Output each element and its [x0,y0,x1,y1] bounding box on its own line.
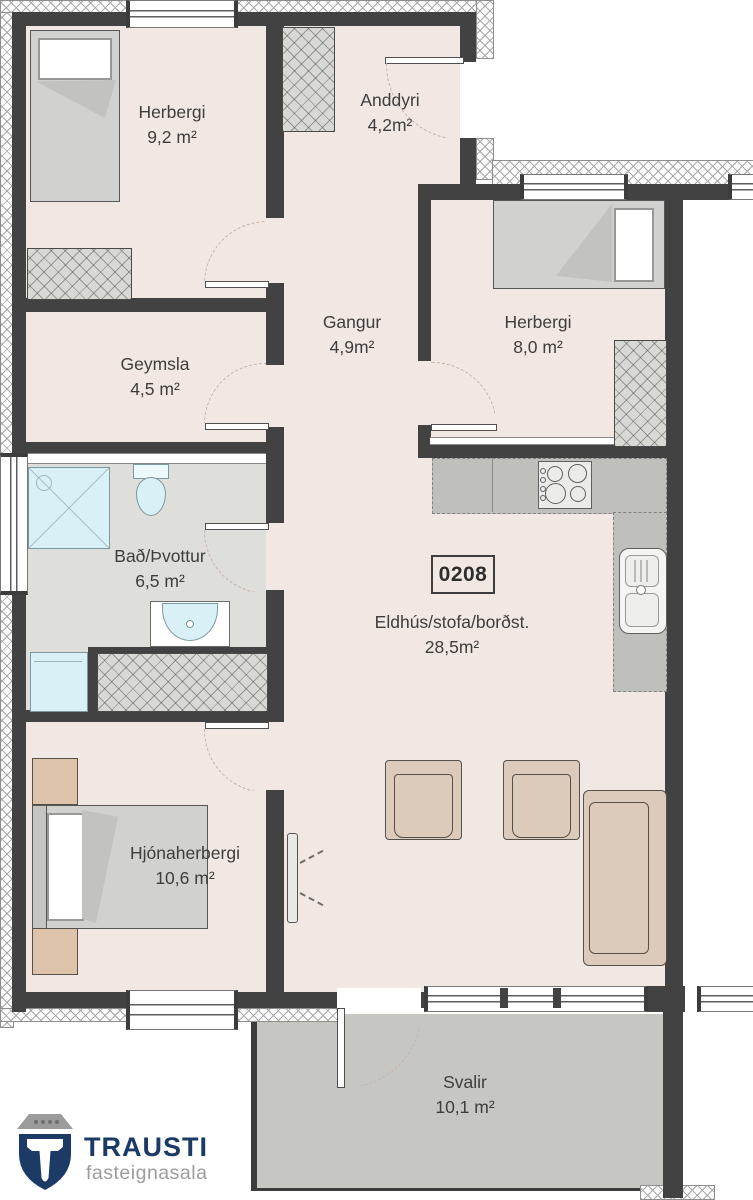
door-leaf [205,523,269,530]
brand-logo: TRAUSTI fasteignasala [14,1106,254,1196]
burner-icon [568,464,587,483]
wardrobe-herbergi-1 [27,248,132,300]
door-leaf [431,424,497,431]
wardrobe-anddyri [282,27,335,132]
stove-knob-icon [540,495,546,501]
stove [538,461,592,509]
stove-knob-icon [540,477,546,483]
kitchen-sink-basin [625,593,659,627]
wall-bathroom-right-upper [266,442,284,523]
logo-shield-icon [14,1106,76,1192]
wall-geymsla-bathroom [12,442,284,453]
kitchen-sink [619,548,667,634]
stove-knob-icon [540,486,546,492]
burner-icon [547,466,563,482]
unit-number-badge: 0208 [431,555,495,594]
door-leaf [205,722,269,729]
room-label-bad: Bað/Þvottur 6,5 m² [114,544,205,594]
room-label-eldhus: Eldhús/stofa/borðst. 28,5m² [375,610,530,660]
room-name: Herbergi [138,100,205,125]
room-area: 10,1 m² [435,1095,494,1120]
door-leaf [205,281,269,288]
armchair-seat [512,774,571,838]
window-herbergi-1 [126,0,238,28]
room-name: Svalir [435,1070,494,1095]
nightstand [32,758,78,805]
kitchen-sink-drainboard [625,555,659,587]
room-name: Anddyri [360,88,419,113]
wall-balcony-divider [663,986,683,1198]
brand-name: TRAUSTI [84,1132,208,1163]
room-area: 4,2m² [360,113,419,138]
window-mullion [553,988,561,1008]
room-name: Geymsla [120,352,189,377]
room-name: Eldhús/stofa/borðst. [375,610,530,635]
bed-headboard [32,805,47,929]
room-area: 6,5 m² [114,569,205,594]
room-label-herbergi-2: Herbergi 8,0 m² [504,310,571,360]
window-neighbor-top [728,174,753,200]
door-gap-herbergi-1 [266,218,284,283]
nightstand [32,928,78,975]
bed-pillow [38,38,112,80]
wall-entry-upper [460,12,476,62]
shower-drain-icon [36,475,52,491]
exterior-hatch-entry-upper [476,0,494,59]
brand-tagline: fasteignasala [86,1162,207,1185]
entry-door-leaf [385,57,464,64]
room-name: Gangur [323,310,381,335]
room-name: Herbergi [504,310,571,335]
wardrobe-hjonaherbergi [97,653,268,712]
room-label-geymsla: Geymsla 4,5 m² [120,352,189,402]
entry-door-gap [460,62,476,138]
window-herbergi-2 [520,174,628,200]
plumbing-wall-band [26,453,284,464]
bathroom-faucet-icon [186,620,194,628]
room-area: 8,0 m² [504,335,571,360]
armchair-seat [394,774,453,838]
room-area: 10,6 m² [130,866,240,891]
sofa-seat [589,802,649,954]
wall-herbergi2-left-upper [418,198,431,361]
balcony-door-gap [337,988,421,1008]
window-living [424,986,648,1012]
window-neighbor-bottom [697,986,753,1012]
room-area: 9,2 m² [138,125,205,150]
room-area: 4,5 m² [120,377,189,402]
window-mullion [500,988,508,1008]
room-label-hjonaherbergi: Hjónaherbergi 10,6 m² [130,841,240,891]
tv [287,833,298,923]
room-label-anddyri: Anddyri 4,2m² [360,88,419,138]
wall-bathroom-right-lower [266,590,284,722]
wall-geymsla-right-upper [266,312,284,365]
door-gap-geymsla [266,365,284,427]
counter-pass-band [430,437,620,445]
wall-top [12,12,475,26]
unit-number: 0208 [439,563,488,587]
burner-icon [545,483,566,504]
room-name: Hjónaherbergi [130,841,240,866]
room-area: 28,5m² [375,635,530,660]
wall-herbergi1-geymsla [12,298,284,312]
window-hjonaherbergi [126,990,238,1030]
door-leaf [205,423,269,430]
kitchen-cabinet-divider [492,458,493,512]
wall-right [665,198,683,1008]
room-label-svalir: Svalir 10,1 m² [435,1070,494,1120]
wardrobe-herbergi-2 [614,340,667,447]
washing-machine-lid [34,656,82,662]
burner-icon [570,486,586,502]
kitchen-faucet-icon [636,585,646,595]
room-area: 4,9m² [323,335,381,360]
stove-knob-icon [540,468,546,474]
wall-hjona-right [266,790,284,1008]
floor-plan: Herbergi 9,2 m² Anddyri 4,2m² Herbergi 8… [0,0,753,1200]
door-gap-herbergi-2 [418,361,431,425]
room-label-herbergi-1: Herbergi 9,2 m² [138,100,205,150]
window-bathroom [0,453,28,595]
room-label-gangur: Gangur 4,9m² [323,310,381,360]
door-gap-bathroom [266,523,284,590]
bed-pillow [47,813,84,921]
bed-pillow [614,208,654,282]
door-gap-hjonaherbergi [266,722,284,790]
room-name: Bað/Þvottur [114,544,205,569]
balcony-door-leaf [337,1008,345,1088]
